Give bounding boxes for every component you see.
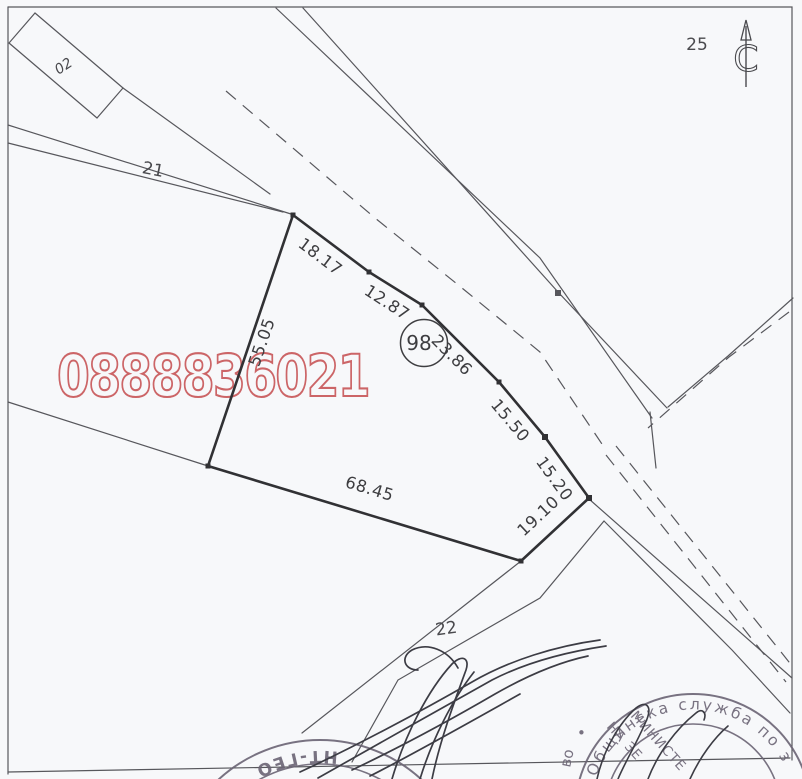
signature-stroke <box>352 656 588 770</box>
dimension-label: 19.10 <box>514 492 563 540</box>
vertex-marker <box>519 559 524 564</box>
road21-number-label: 21 <box>140 158 165 182</box>
road22-edge-lower <box>352 521 604 762</box>
scanned-cadastral-map: 0888836021 <box>0 0 802 779</box>
north-indicator: С <box>733 20 758 87</box>
boundary-right-x <box>668 298 793 407</box>
dimension-label: 23.86 <box>428 331 477 380</box>
watermark-phone: 0888836021 <box>57 342 369 410</box>
junction-stub <box>650 412 656 468</box>
road22-edge-upper <box>302 561 521 733</box>
vertex-marker <box>542 434 548 440</box>
vertex-marker <box>586 495 592 501</box>
road-br-edge-lower <box>604 521 790 713</box>
cadastral-map-canvas: 0888836021 <box>0 0 802 779</box>
dimension-label: 12.87 <box>361 281 413 324</box>
dimension-label: 15.50 <box>487 395 534 445</box>
municipal-stamp: Общинска служба по з во • МИНИСТЕ НА ЗЕ <box>556 694 802 779</box>
road22-number-label: 22 <box>434 618 458 641</box>
cadastre-numbers: 25 02 21 22 <box>52 35 708 640</box>
vertex-marker <box>420 303 425 308</box>
municipal-stamp-ring-fragment: во <box>556 747 577 768</box>
dimension-label: 18.17 <box>295 234 346 279</box>
survey-node-marker <box>555 290 561 296</box>
vertex-marker <box>497 380 502 385</box>
vertex-marker <box>367 270 372 275</box>
dashed-axis-br-b <box>616 446 793 667</box>
signature-stroke <box>690 726 728 779</box>
sheet-number-label: 25 <box>686 35 708 55</box>
north-letter: С <box>733 39 758 80</box>
company-stamp: НТ-ГЕО <box>170 740 470 779</box>
vertex-marker <box>206 464 211 469</box>
municipal-stamp-ring-dot: • <box>577 724 586 742</box>
dimension-label: 15.20 <box>532 453 577 504</box>
signature-stroke <box>300 640 600 772</box>
vertex-marker <box>291 213 296 218</box>
building-number-label: 02 <box>52 55 76 78</box>
dashed-axis-br-a <box>606 455 786 682</box>
dimension-label: 68.45 <box>343 472 396 505</box>
dashed-axis-right <box>648 312 789 428</box>
boundary-to-west-vertex <box>8 402 208 466</box>
